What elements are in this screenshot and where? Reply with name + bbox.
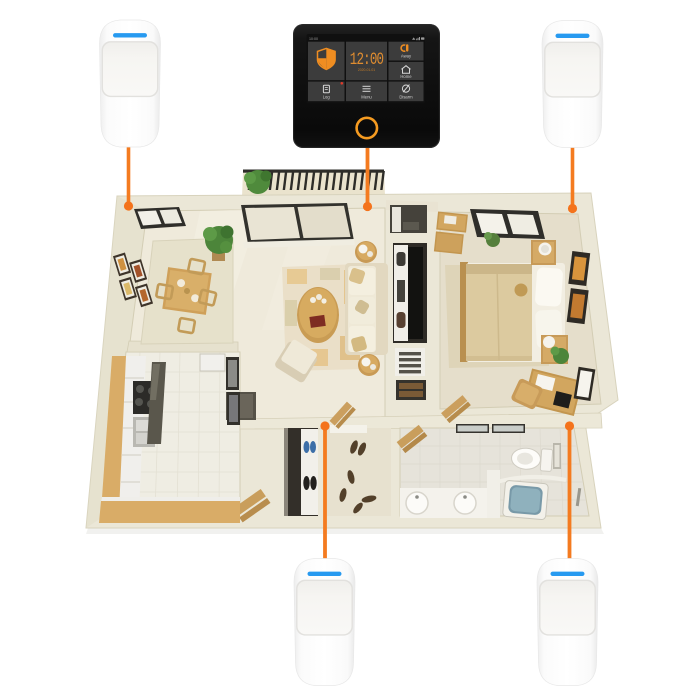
svg-text:Home: Home [400, 74, 412, 79]
svg-text:2020-01-01: 2020-01-01 [358, 68, 375, 72]
svg-text:10:00: 10:00 [309, 37, 318, 41]
svg-text:Disarm: Disarm [399, 94, 413, 99]
svg-text:Menu: Menu [361, 94, 372, 99]
svg-text:Away: Away [401, 54, 412, 59]
svg-text:12:00: 12:00 [350, 49, 384, 70]
svg-text:Log: Log [323, 94, 331, 99]
